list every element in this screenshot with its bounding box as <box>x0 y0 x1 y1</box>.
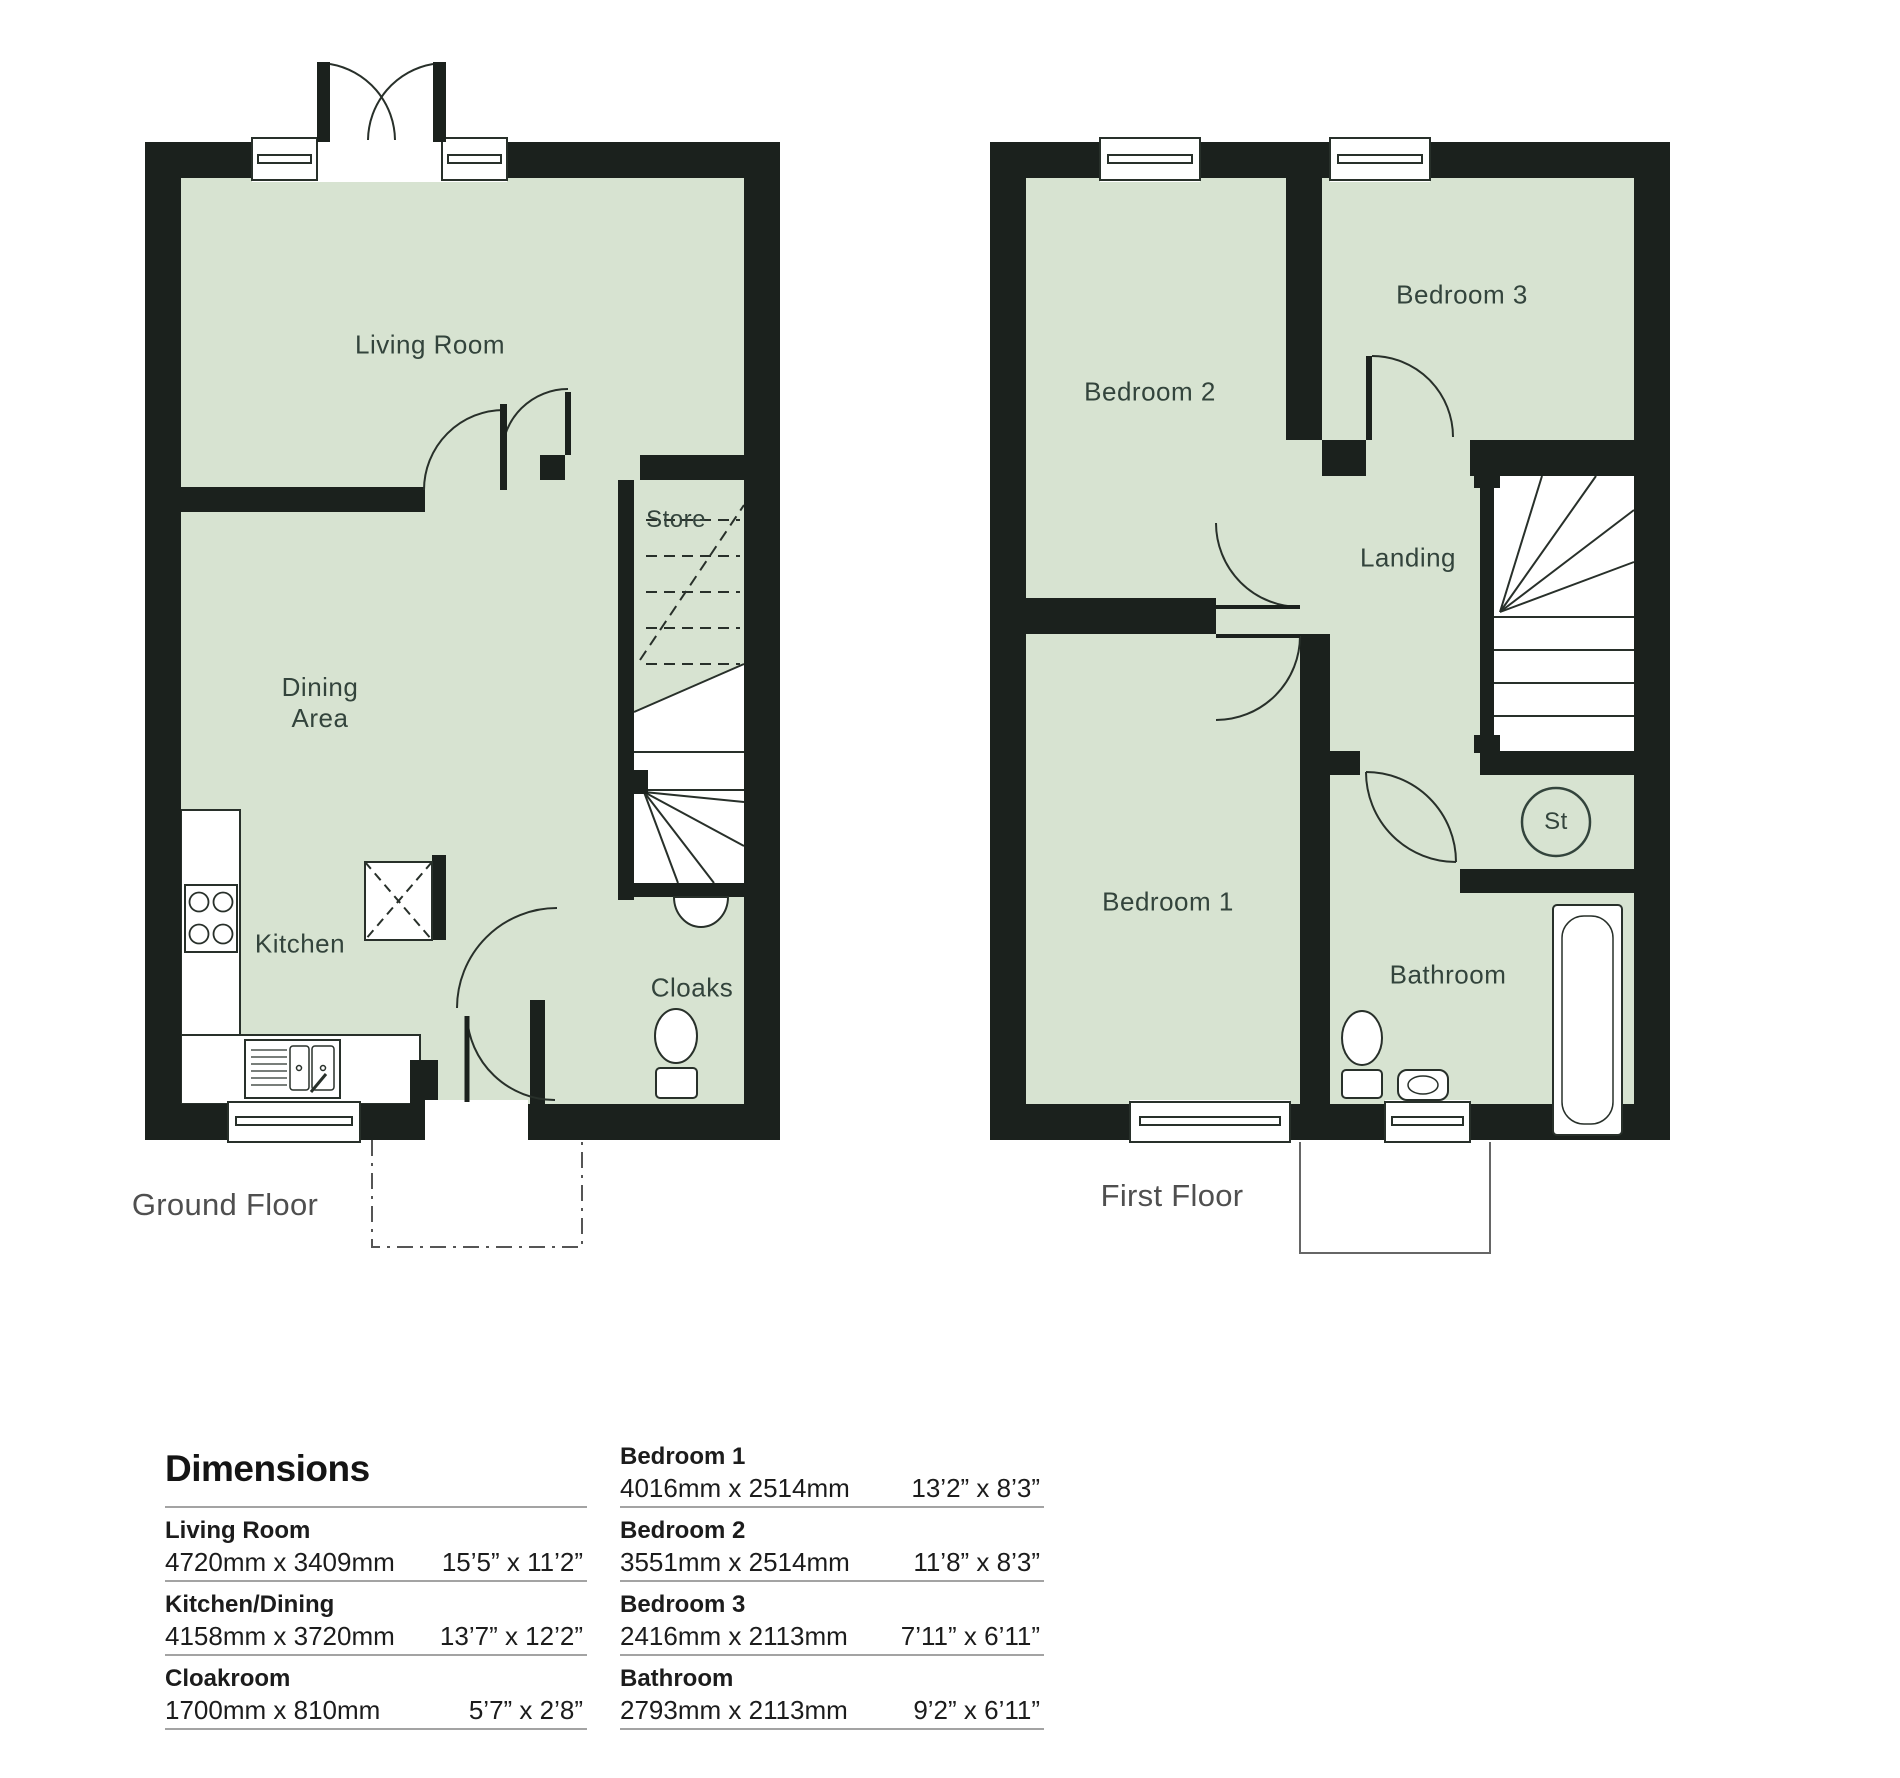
door-leaf <box>1366 356 1372 440</box>
window-icon <box>228 1102 360 1142</box>
dimension-row: Bathroom 2793mm x 2113mm 9’2” x 6’11” <box>620 1656 1044 1730</box>
dimension-room-name: Bathroom <box>620 1664 1044 1694</box>
label-dining-line2: Area <box>282 703 359 734</box>
label-dining-line1: Dining <box>282 672 359 703</box>
dimension-metric: 4158mm x 3720mm <box>165 1620 395 1652</box>
dimensions-title: Dimensions <box>165 1442 587 1508</box>
dimension-row: Bedroom 2 3551mm x 2514mm 11’8” x 8’3” <box>620 1508 1044 1582</box>
dimension-imperial: 11’8” x 8’3” <box>913 1546 1044 1578</box>
toilet-icon <box>655 1009 697 1098</box>
dimension-row: Kitchen/Dining 4158mm x 3720mm 13’7” x 1… <box>165 1582 587 1656</box>
door-leaf <box>565 392 571 455</box>
dimension-imperial: 5’7” x 2’8” <box>469 1694 587 1726</box>
label-bathroom: Bathroom <box>1390 960 1507 991</box>
dimension-imperial: 13’7” x 12’2” <box>440 1620 587 1652</box>
label-bedroom1: Bedroom 1 <box>1102 887 1234 918</box>
label-living-room: Living Room <box>355 330 505 361</box>
door-leaf <box>500 404 507 490</box>
dimension-imperial: 13’2” x 8’3” <box>911 1472 1044 1504</box>
dimension-imperial: 9’2” x 6’11” <box>913 1694 1044 1726</box>
toilet-icon <box>1342 1011 1382 1098</box>
dimension-room-name: Kitchen/Dining <box>165 1590 587 1620</box>
label-bedroom2: Bedroom 2 <box>1084 377 1216 408</box>
dimension-room-name: Living Room <box>165 1516 587 1546</box>
dimension-room-name: Cloakroom <box>165 1664 587 1694</box>
dimension-metric: 3551mm x 2514mm <box>620 1546 850 1578</box>
sink-icon <box>245 1040 340 1098</box>
label-st: St <box>1544 808 1568 836</box>
dimension-metric: 1700mm x 810mm <box>165 1694 380 1726</box>
dimension-metric: 2793mm x 2113mm <box>620 1694 848 1726</box>
dimension-room-name: Bedroom 2 <box>620 1516 1044 1546</box>
bath-icon <box>1553 905 1622 1135</box>
dimension-metric: 4016mm x 2514mm <box>620 1472 850 1504</box>
entrance-opening <box>425 1100 528 1144</box>
first-stairs-area <box>1494 476 1634 751</box>
label-cloaks: Cloaks <box>651 973 733 1004</box>
label-landing: Landing <box>1360 543 1456 574</box>
label-store: Store <box>646 506 706 534</box>
dimension-metric: 4720mm x 3409mm <box>165 1546 395 1578</box>
ground-floor-title: Ground Floor <box>132 1187 318 1223</box>
dimension-imperial: 7’11” x 6’11” <box>901 1620 1044 1652</box>
ground-floor-plan <box>145 62 780 1247</box>
dimension-imperial: 15’5” x 11’2” <box>442 1546 587 1578</box>
first-floor-plan <box>990 136 1670 1253</box>
canopy-outline <box>1300 1142 1490 1253</box>
label-dining-area: Dining Area <box>282 672 359 734</box>
dimension-row: Bedroom 1 4016mm x 2514mm 13’2” x 8’3” <box>620 1442 1044 1508</box>
first-floor-title: First Floor <box>1101 1178 1244 1214</box>
dimension-row: Living Room 4720mm x 3409mm 15’5” x 11’2… <box>165 1508 587 1582</box>
label-kitchen: Kitchen <box>255 929 345 960</box>
label-bedroom3: Bedroom 3 <box>1396 280 1528 311</box>
french-doors-icon <box>317 62 446 142</box>
basin-icon <box>1398 1070 1448 1100</box>
floorplan-page: Living Room Dining Area Store Kitchen Cl… <box>0 0 1900 1778</box>
dimension-row: Bedroom 3 2416mm x 2113mm 7’11” x 6’11” <box>620 1582 1044 1656</box>
dimension-metric: 2416mm x 2113mm <box>620 1620 848 1652</box>
dimension-room-name: Bedroom 1 <box>620 1442 1044 1472</box>
porch-outline <box>372 1140 582 1247</box>
ground-interior <box>181 178 744 1104</box>
dimensions-left-column: Dimensions Living Room 4720mm x 3409mm 1… <box>165 1442 587 1730</box>
dimensions-right-column: Bedroom 1 4016mm x 2514mm 13’2” x 8’3” B… <box>620 1442 1044 1730</box>
dimension-row: Cloakroom 1700mm x 810mm 5’7” x 2’8” <box>165 1656 587 1730</box>
kitchen-unit-icon <box>365 862 432 940</box>
hob-icon <box>185 885 237 952</box>
dimension-room-name: Bedroom 3 <box>620 1590 1044 1620</box>
